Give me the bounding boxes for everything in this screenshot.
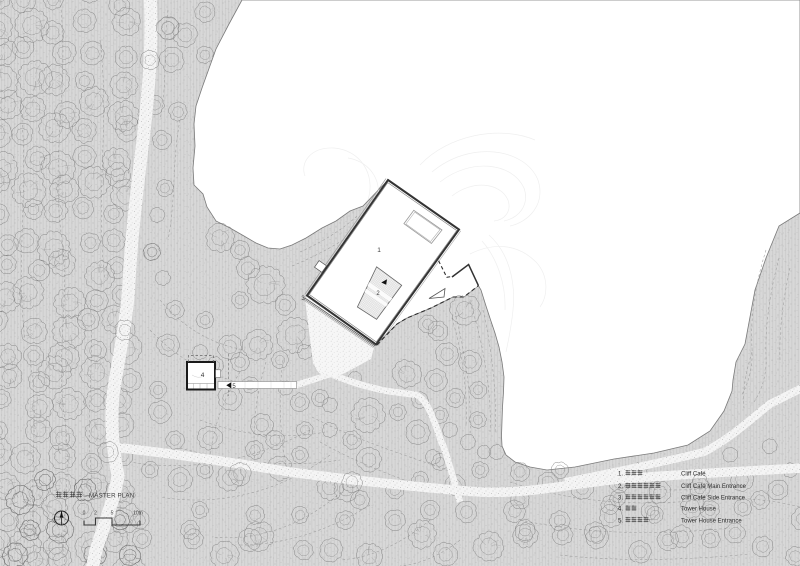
svg-text:0: 0 xyxy=(83,511,86,517)
svg-text:Cliff Café Main Entrance: Cliff Café Main Entrance xyxy=(681,484,747,490)
svg-text:MASTER PLAN: MASTER PLAN xyxy=(89,493,134,500)
svg-text:N: N xyxy=(53,519,56,524)
svg-text:5.: 5. xyxy=(618,518,623,524)
svg-text:·: · xyxy=(86,494,88,500)
svg-text:2.: 2. xyxy=(618,484,623,490)
svg-text:Tower House: Tower House xyxy=(681,507,717,513)
svg-text:Cliff Café Side Entrance: Cliff Café Side Entrance xyxy=(681,496,746,502)
svg-text:4.: 4. xyxy=(618,507,623,513)
svg-text:3.: 3. xyxy=(618,496,623,502)
svg-text:10m: 10m xyxy=(133,511,143,517)
svg-text:1: 1 xyxy=(377,247,381,254)
svg-text:2: 2 xyxy=(94,511,97,517)
svg-text:5: 5 xyxy=(111,511,114,517)
svg-text:1.: 1. xyxy=(618,471,623,477)
svg-text:Tower House Entrance: Tower House Entrance xyxy=(681,518,742,524)
svg-text:4: 4 xyxy=(201,372,205,379)
svg-text:Cliff Café: Cliff Café xyxy=(681,471,706,477)
